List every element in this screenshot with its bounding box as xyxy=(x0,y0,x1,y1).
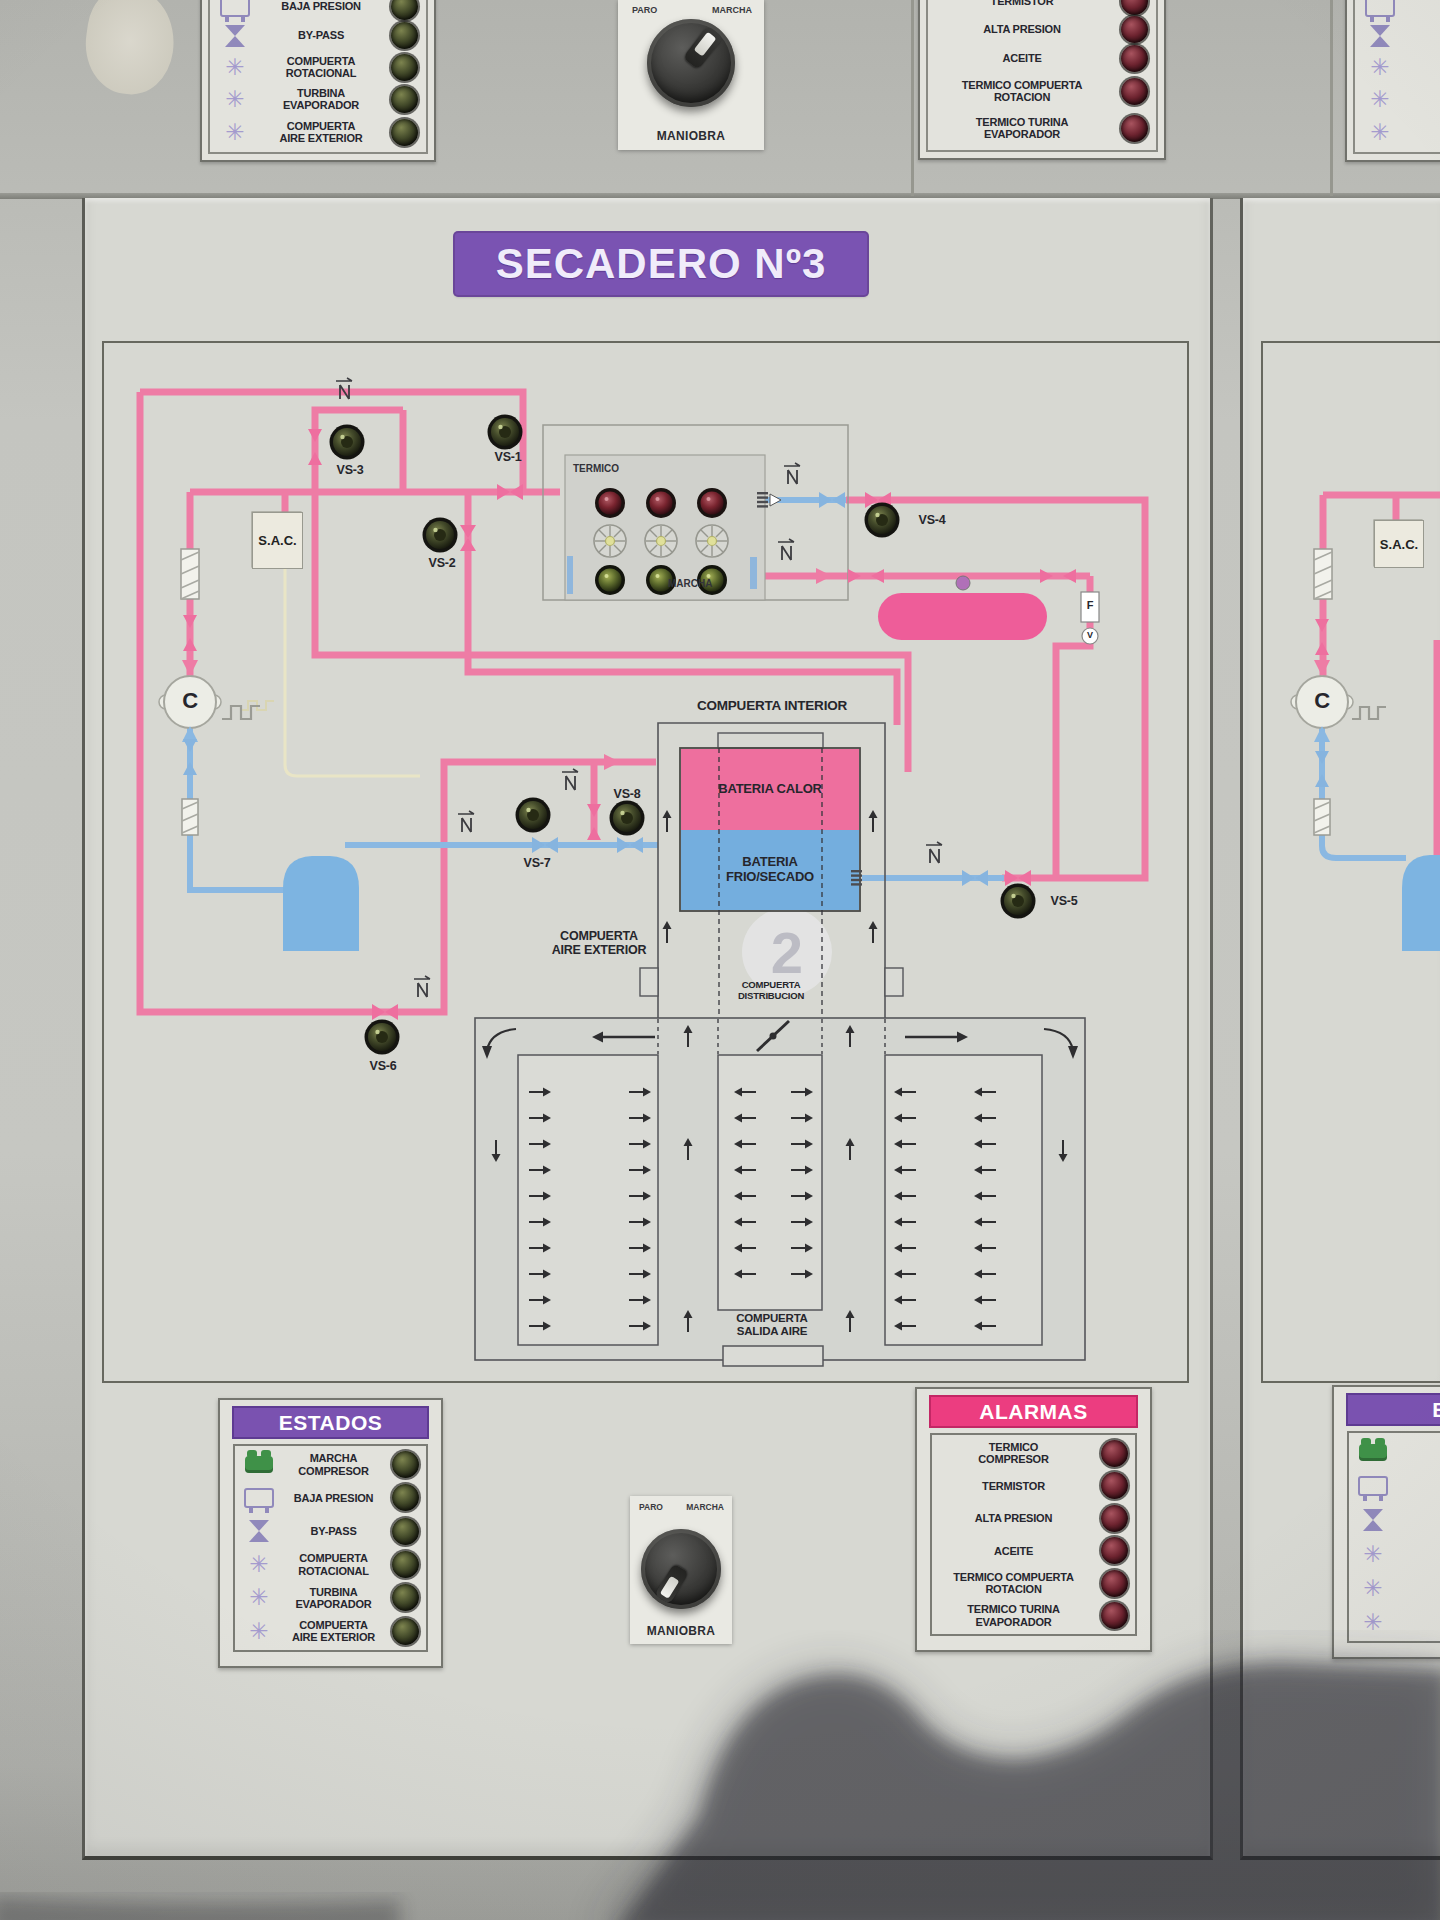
maniobra-knob[interactable] xyxy=(641,1529,721,1609)
board-title: SECADERO Nº3 xyxy=(455,233,867,295)
sac-box: S.A.C. xyxy=(252,512,303,569)
right-compressor-symbol xyxy=(1291,660,1386,742)
status-lamp xyxy=(392,1551,419,1578)
estados-row-turbina-evaporador: ✳ TURBINA EVAPORADOR xyxy=(236,1584,425,1611)
fan-icon: ✳ xyxy=(249,1586,268,1609)
right-sac-box: S.A.C. xyxy=(1374,520,1424,568)
compressor-icon xyxy=(245,1456,273,1473)
panel-row: ACEITE xyxy=(930,44,1154,73)
panel-row: BY-PASS xyxy=(1357,20,1440,51)
panel-row: ✳ COMPUERTA ROTACIONAL xyxy=(212,51,424,83)
alarm-lamp xyxy=(1121,115,1148,142)
status-lamp xyxy=(391,86,418,113)
panel-row: ✳ COMPUERTA ROTACIONAL xyxy=(1357,51,1440,83)
right-estados-panel-partial: ESTADOS MARCHA COMPRESOR BAJA PRESION BY… xyxy=(1332,1385,1440,1659)
fan-icon: ✳ xyxy=(249,1620,268,1643)
alarm-lamp xyxy=(1121,78,1148,105)
upper-alarmas-panel-partial: TERMISTOR ALTA PRESION ACEITE TERMICO CO… xyxy=(918,0,1166,160)
estados-row-bypass: BY-PASS xyxy=(236,1518,425,1545)
paro-label: PARO xyxy=(639,1502,663,1512)
panel-row: BAJA PRESION xyxy=(212,0,424,20)
alarmas-panel: ALARMAS TERMICO COMPRESOR TERMISTOR ALTA… xyxy=(915,1387,1152,1652)
paro-label: PARO xyxy=(632,5,657,15)
vs2-label: VS-2 xyxy=(429,556,456,570)
right-cold-tank-partial xyxy=(1402,855,1440,951)
valve-icon xyxy=(247,1520,271,1542)
compuerta-interior-label: COMPUERTA INTERIOR xyxy=(697,698,847,713)
fan-icon: ✳ xyxy=(225,121,244,144)
compressor-icon xyxy=(1359,1444,1387,1461)
fan-icon: ✳ xyxy=(225,88,244,111)
alarmas-row-termico-compresor: TERMICO COMPRESOR xyxy=(933,1440,1134,1467)
alarm-lamp xyxy=(1101,1537,1128,1564)
vs7-label: VS-7 xyxy=(524,856,551,870)
estados-header: ESTADOS xyxy=(1348,1395,1440,1424)
alarm-lamp xyxy=(1121,16,1148,43)
panel-row: TERMICO COMPUERTA ROTACION xyxy=(930,73,1154,109)
compuerta-distribucion-label: COMPUERTA DISTRIBUCION xyxy=(738,980,804,1002)
upper-maniobra-switch-plate: PARO MARCHA MANIOBRA xyxy=(618,0,764,150)
status-lamp xyxy=(392,1484,419,1511)
panel-row: ✳ TURBINA EVAPORADOR xyxy=(1357,83,1440,115)
maniobra-switch-plate: PARO MARCHA MANIOBRA xyxy=(630,1496,732,1644)
panel-row: ✳ COMPUERTA AIRE EXTERIOR xyxy=(1357,115,1440,149)
maniobra-knob[interactable] xyxy=(647,19,735,107)
salida-aire-damper xyxy=(723,1346,823,1366)
panel-row: BAJA PRESION xyxy=(1350,1473,1440,1500)
maniobra-caption: MANIOBRA xyxy=(618,129,764,143)
status-lamp xyxy=(392,1518,419,1545)
alarm-lamp xyxy=(1101,1472,1128,1499)
status-lamp xyxy=(392,1584,419,1611)
panel-row: TERMISTOR xyxy=(930,0,1154,14)
alarmas-header: ALARMAS xyxy=(931,1397,1136,1426)
vs8-label: VS-8 xyxy=(614,787,641,801)
maniobra-caption: MANIOBRA xyxy=(630,1624,732,1638)
alarmas-row-alta-presion: ALTA PRESION xyxy=(933,1505,1134,1532)
fan-icon: ✳ xyxy=(1370,88,1389,111)
compressor-letter: C xyxy=(182,688,198,713)
estados-row-baja-presion: BAJA PRESION xyxy=(236,1484,425,1511)
bateria-calor-label: BATERIA CALOR xyxy=(718,782,822,797)
tank-indicator-dot xyxy=(956,576,970,590)
tank-icon xyxy=(244,1488,274,1508)
panel-row: ✳ COMPUERTA AIRE EXTERIOR xyxy=(1350,1609,1440,1636)
fan-icon: ✳ xyxy=(1370,121,1389,144)
status-lamp xyxy=(392,1618,419,1645)
marcha-label: MARCHA xyxy=(686,1502,724,1512)
panel-row: MARCHA COMPRESOR xyxy=(1350,1439,1440,1466)
compuerta-salida-label: COMPUERTA SALIDA AIRE xyxy=(736,1312,807,1338)
alarmas-row-termistor: TERMISTOR xyxy=(933,1472,1134,1499)
bateria-frio-label: BATERIA FRIO/SECADO xyxy=(726,855,814,885)
panel-row: ✳ COMPUERTA AIRE EXTERIOR xyxy=(212,115,424,149)
estados-row-compuerta-rotacional: ✳ COMPUERTA ROTACIONAL xyxy=(236,1551,425,1578)
right-compressor-letter: C xyxy=(1314,688,1330,713)
panel-row: BY-PASS xyxy=(1350,1507,1440,1534)
alarm-lamp xyxy=(1101,1602,1128,1629)
vs3-label: VS-3 xyxy=(337,463,364,477)
valve-icon xyxy=(223,25,247,47)
panel-row: ✳ TURBINA EVAPORADOR xyxy=(212,83,424,115)
tank-icon xyxy=(1365,0,1395,17)
status-lamp xyxy=(392,1451,419,1478)
v-instrument-label: V xyxy=(1087,630,1093,640)
f-instrument-label: F xyxy=(1087,599,1094,612)
compressor-symbol xyxy=(159,660,260,742)
estados-row-compuerta-aire-exterior: ✳ COMPUERTA AIRE EXTERIOR xyxy=(236,1618,425,1645)
vs4-label: VS-4 xyxy=(919,513,946,527)
tank-icon xyxy=(1358,1476,1388,1496)
estados-panel: ESTADOS MARCHA COMPRESOR BAJA PRESION BY… xyxy=(218,1398,443,1668)
alarm-lamp xyxy=(1101,1570,1128,1597)
estados-header: ESTADOS xyxy=(234,1408,427,1437)
fan-icon: ✳ xyxy=(1370,56,1389,79)
panel-row: ✳ COMPUERTA ROTACIONAL xyxy=(1350,1541,1440,1568)
status-lamp xyxy=(391,0,418,20)
compuerta-aire-exterior-label: COMPUERTA AIRE EXTERIOR xyxy=(552,929,647,958)
fan-icon: ✳ xyxy=(1363,1543,1382,1566)
marcha-label: MARCHA xyxy=(712,5,752,15)
valve-icon xyxy=(1361,1509,1385,1531)
vs1-label: VS-1 xyxy=(495,450,522,464)
fan-icon: ✳ xyxy=(1363,1611,1382,1634)
panel-row: ✳ TURBINA EVAPORADOR xyxy=(1350,1575,1440,1602)
panel-row: BY-PASS xyxy=(212,20,424,51)
alarmas-row-aceite: ACEITE xyxy=(933,1537,1134,1564)
alarm-lamp xyxy=(1101,1440,1128,1467)
termico-label: TERMICO xyxy=(573,463,619,474)
estados-row-marcha-compresor: MARCHA COMPRESOR xyxy=(236,1451,425,1478)
panel-row: ALTA PRESION xyxy=(930,14,1154,44)
status-lamp xyxy=(391,119,418,146)
tank-icon xyxy=(220,0,250,17)
fan-icon: ✳ xyxy=(1363,1577,1382,1600)
alarm-lamp xyxy=(1121,0,1148,15)
fan-icon: ✳ xyxy=(225,56,244,79)
fan-icon: ✳ xyxy=(249,1553,268,1576)
hot-gas-receiver-tank xyxy=(878,593,1047,640)
valve-icon xyxy=(1368,25,1392,47)
panel-row: TERMICO TURINA EVAPORADOR xyxy=(930,109,1154,147)
upper-far-right-estados-partial: BAJA PRESION BY-PASS ✳ COMPUERTA ROTACIO… xyxy=(1345,0,1440,162)
upper-estados-panel-partial: BAJA PRESION BY-PASS ✳ COMPUERTA ROTACIO… xyxy=(200,0,436,162)
panel-row: BAJA PRESION xyxy=(1357,0,1440,20)
vs5-label: VS-5 xyxy=(1051,894,1078,908)
alarmas-row-termico-compuerta: TERMICO COMPUERTA ROTACION xyxy=(933,1570,1134,1597)
termico-marcha-label: MARCHA xyxy=(668,578,712,589)
alarmas-row-termico-turina: TERMICO TURINA EVAPORADOR xyxy=(933,1602,1134,1629)
status-lamp xyxy=(391,22,418,49)
status-lamp xyxy=(391,54,418,81)
alarm-lamp xyxy=(1121,45,1148,72)
vs6-label: VS-6 xyxy=(370,1059,397,1073)
cold-collector-tank xyxy=(283,856,359,951)
alarm-lamp xyxy=(1101,1505,1128,1532)
